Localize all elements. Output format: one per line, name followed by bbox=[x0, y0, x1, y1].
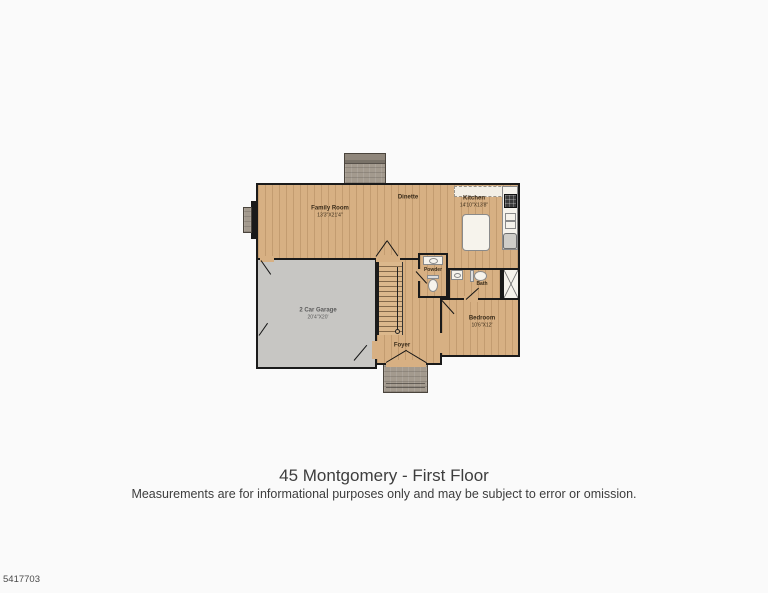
stair-rail bbox=[397, 267, 398, 331]
toilet-icon bbox=[428, 279, 438, 292]
range-icon bbox=[504, 194, 517, 208]
room-name: 2 Car Garage bbox=[299, 308, 336, 315]
sink-basin bbox=[454, 273, 461, 278]
room-label-family-room: Family Room 13'3"X21'4" bbox=[311, 206, 349, 219]
stair-newel bbox=[395, 329, 400, 334]
room-dimensions: 14'10"X13'8" bbox=[460, 203, 488, 209]
room-label-bath: Bath bbox=[476, 281, 487, 287]
room-name: Family Room bbox=[311, 206, 349, 213]
room-label-bedroom: Bedroom 10'6"X12' bbox=[469, 316, 495, 329]
shower-stall bbox=[502, 268, 520, 300]
floor-plan: Family Room 13'3"X21'4" Dinette Kitchen … bbox=[256, 183, 520, 369]
room-name: Kitchen bbox=[460, 196, 488, 203]
bath-sink-icon bbox=[451, 270, 463, 280]
staircase bbox=[377, 262, 403, 335]
room-name: Bedroom bbox=[469, 316, 495, 323]
shower-icon bbox=[504, 270, 518, 298]
room-dimensions: 10'6"X12' bbox=[469, 323, 495, 329]
photo-id: 5417703 bbox=[3, 574, 40, 585]
room-label-powder: Powder bbox=[424, 267, 442, 273]
stoop-step-line bbox=[386, 387, 425, 388]
opening-garage-foyer bbox=[372, 341, 379, 359]
page-title: 45 Montgomery - First Floor bbox=[0, 466, 768, 486]
room-name: Foyer bbox=[394, 343, 410, 350]
opening-bedroom bbox=[438, 333, 444, 353]
room-label-dinette: Dinette bbox=[398, 195, 418, 202]
room-label-kitchen: Kitchen 14'10"X13'8" bbox=[460, 196, 488, 209]
room-label-foyer: Foyer bbox=[394, 343, 410, 350]
kitchen-island bbox=[462, 214, 490, 251]
chimney-block bbox=[344, 153, 386, 184]
dishwasher-icon bbox=[505, 221, 516, 229]
room-label-garage: 2 Car Garage 20'4"X20' bbox=[299, 308, 336, 321]
room-name: Powder bbox=[424, 267, 442, 273]
disclaimer-text: Measurements are for informational purpo… bbox=[0, 487, 768, 501]
room-dimensions: 13'3"X21'4" bbox=[311, 213, 349, 219]
bath-toilet-icon bbox=[474, 271, 487, 281]
room-name: Dinette bbox=[398, 195, 418, 202]
sink-icon bbox=[505, 213, 516, 221]
stoop-step-line bbox=[386, 383, 425, 384]
fireplace-chimney bbox=[243, 207, 252, 233]
sink-basin bbox=[429, 258, 438, 264]
refrigerator-icon bbox=[503, 233, 517, 249]
chimney-cap bbox=[345, 154, 385, 164]
powder-sink-icon bbox=[423, 256, 443, 265]
floor-plan-page: Family Room 13'3"X21'4" Dinette Kitchen … bbox=[0, 0, 768, 593]
room-name: Bath bbox=[476, 281, 487, 287]
room-dimensions: 20'4"X20' bbox=[299, 315, 336, 321]
opening-front-door bbox=[386, 360, 426, 367]
